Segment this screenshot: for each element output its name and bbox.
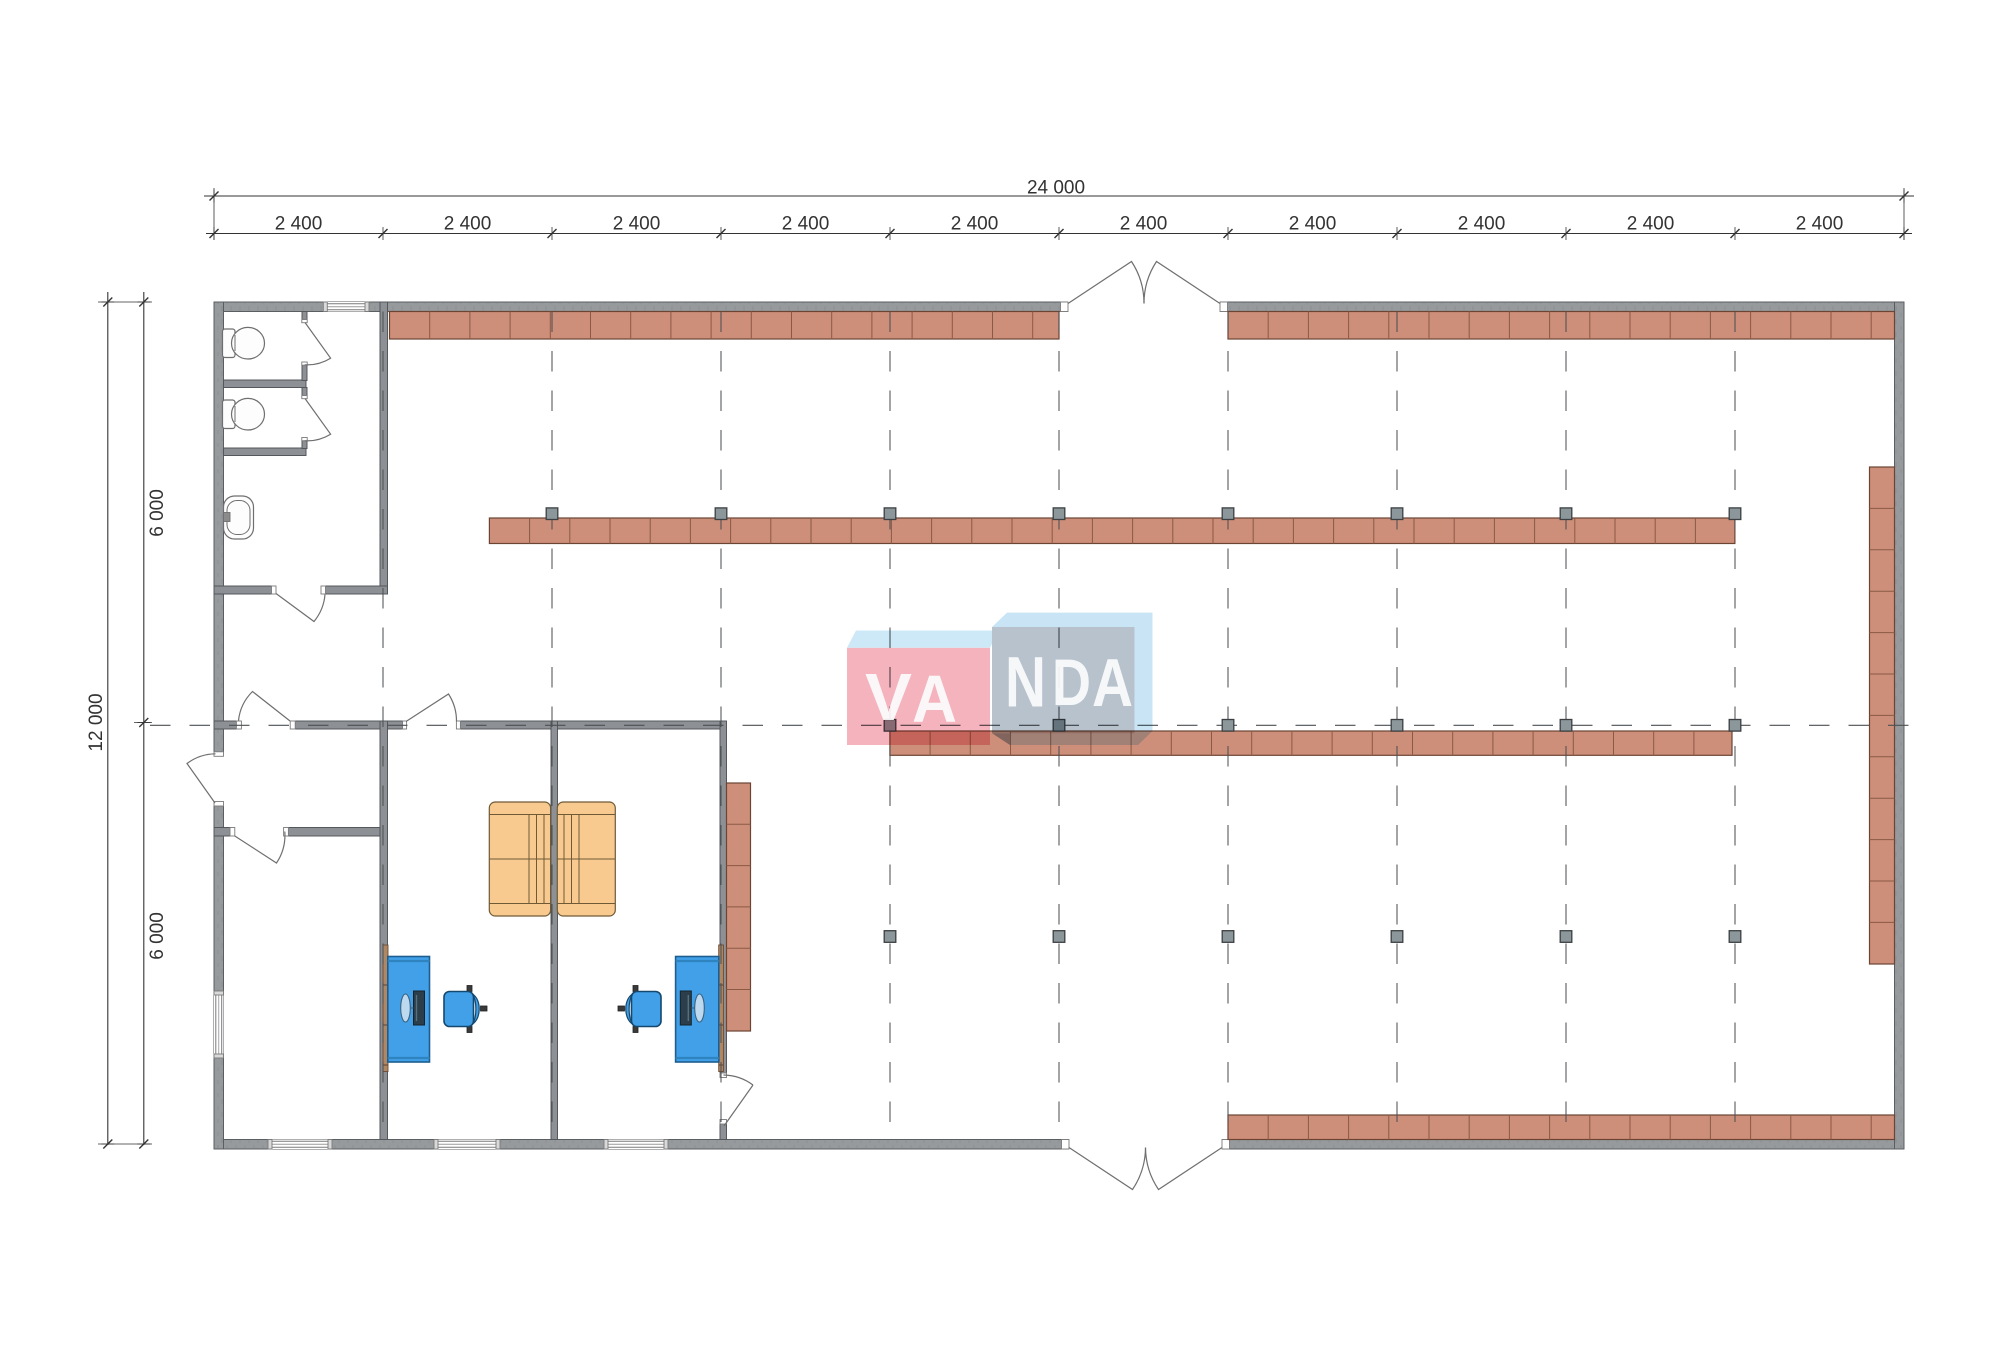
- svg-text:A: A: [1092, 645, 1133, 721]
- svg-text:6 000: 6 000: [147, 489, 168, 537]
- svg-text:2 400: 2 400: [782, 214, 830, 235]
- svg-text:24 000: 24 000: [1027, 178, 1085, 199]
- svg-text:2 400: 2 400: [275, 214, 323, 235]
- svg-text:2 400: 2 400: [1627, 214, 1675, 235]
- svg-text:2 400: 2 400: [1120, 214, 1168, 235]
- svg-text:2 400: 2 400: [1796, 214, 1844, 235]
- svg-text:2 400: 2 400: [613, 214, 661, 235]
- svg-text:2 400: 2 400: [444, 214, 492, 235]
- svg-text:2 400: 2 400: [951, 214, 999, 235]
- svg-text:V: V: [865, 660, 912, 735]
- svg-text:D: D: [1052, 645, 1091, 719]
- svg-text:12 000: 12 000: [86, 693, 107, 751]
- svg-text:2 400: 2 400: [1458, 214, 1506, 235]
- svg-text:N: N: [1005, 644, 1046, 723]
- svg-text:2 400: 2 400: [1289, 214, 1337, 235]
- svg-text:6 000: 6 000: [147, 912, 168, 960]
- svg-text:A: A: [912, 662, 957, 737]
